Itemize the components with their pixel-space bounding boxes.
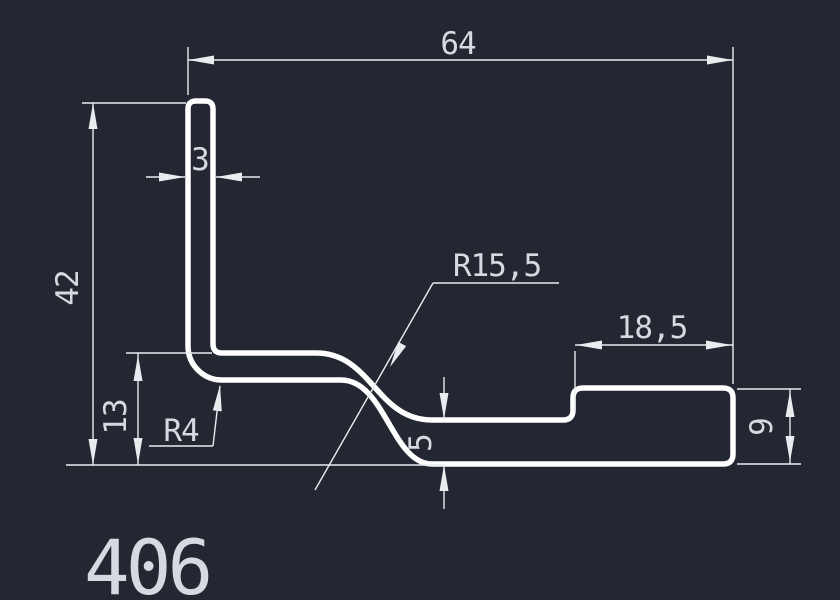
arrowhead <box>706 341 732 350</box>
part-number: 406 <box>84 523 209 600</box>
arrowhead <box>707 56 733 65</box>
arrowhead <box>786 436 795 462</box>
dimension-label: 9 <box>744 418 780 436</box>
dimension-label: 64 <box>440 26 476 62</box>
dimension-5: 5 <box>403 377 449 509</box>
dimension-label: 13 <box>98 399 134 434</box>
dimension-label: R4 <box>163 413 199 449</box>
dimension-label: 18,5 <box>617 310 688 346</box>
cad-drawing: 64 3 42 13 <box>0 0 840 600</box>
dimension-label: 3 <box>191 142 209 178</box>
dimension-label: 42 <box>50 270 86 305</box>
arrowhead <box>576 341 602 350</box>
dimension-r4: R4 <box>149 385 224 449</box>
arrowhead <box>216 173 242 182</box>
arrowhead <box>786 391 795 417</box>
dimension-13: 13 <box>66 353 444 465</box>
arrowhead <box>213 385 225 412</box>
dimension-18-5: 18,5 <box>575 310 733 412</box>
dimension-r15-5: R15,5 <box>315 248 559 490</box>
arrowhead <box>89 103 98 129</box>
arrowhead <box>386 342 406 369</box>
arrowhead <box>440 465 449 491</box>
arrowhead <box>134 438 143 464</box>
dimension-label: R15,5 <box>453 248 541 284</box>
arrowhead <box>188 56 214 65</box>
dimension-9: 9 <box>737 389 801 464</box>
dimension-label: 5 <box>403 434 439 452</box>
arrowhead <box>440 393 449 419</box>
arrowhead <box>89 439 98 465</box>
cad-canvas[interactable]: 64 3 42 13 <box>0 0 840 600</box>
arrowhead <box>159 173 185 182</box>
dimension-3: 3 <box>146 142 260 182</box>
arrowhead <box>134 355 143 381</box>
